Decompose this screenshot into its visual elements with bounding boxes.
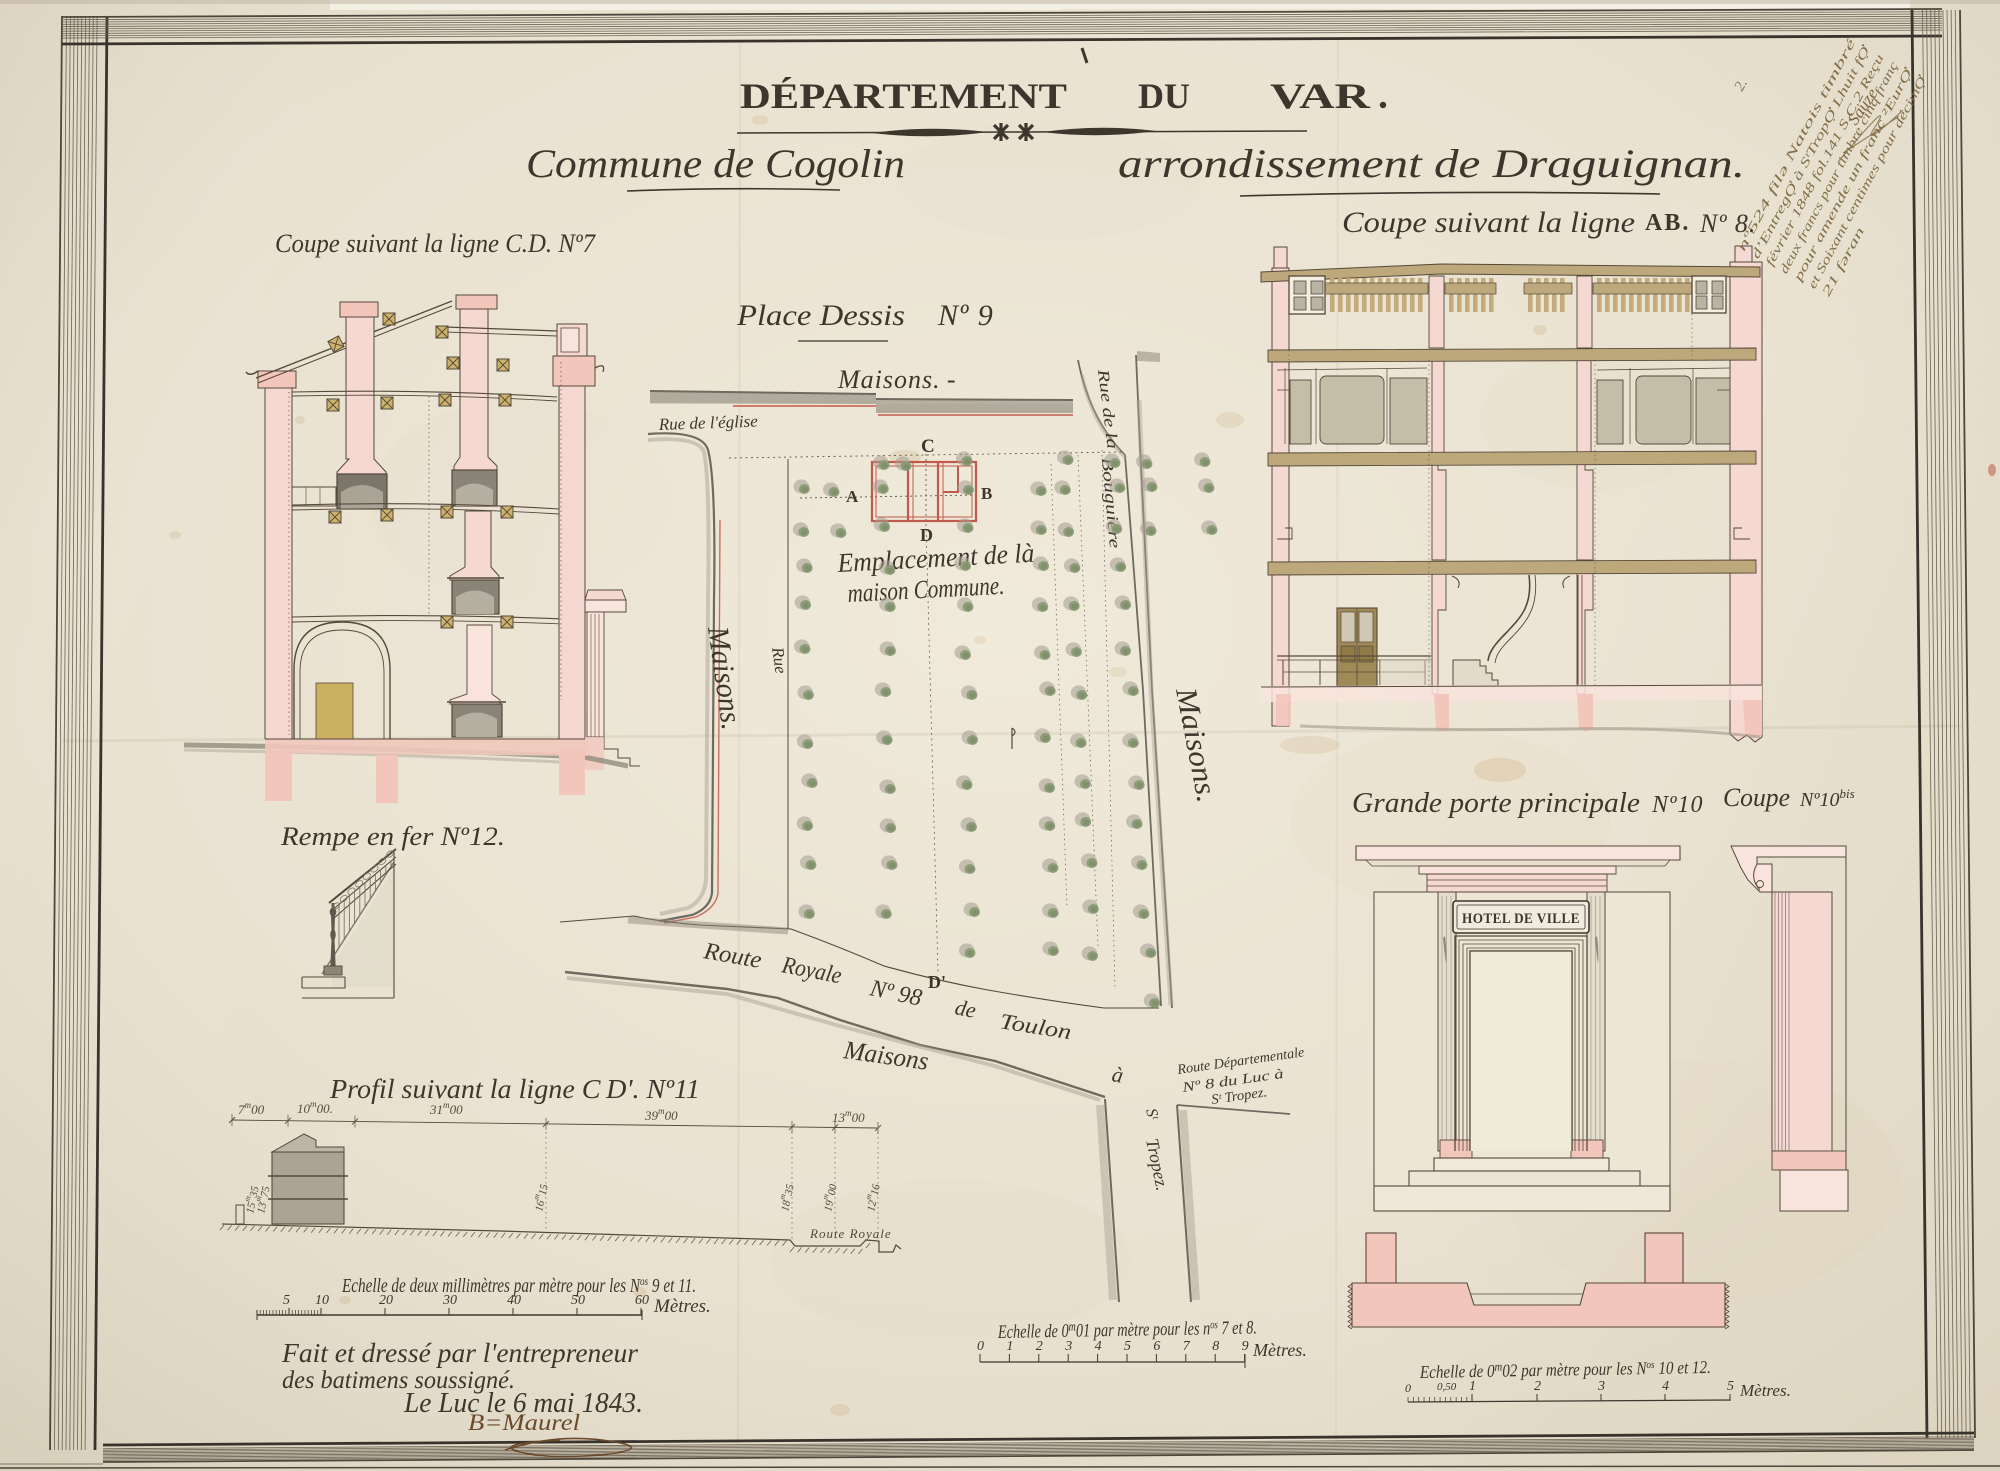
svg-text:5: 5 <box>283 1293 290 1308</box>
svg-text:Grande porte principale: Grande porte principale <box>1352 788 1640 819</box>
svg-text:HOTEL DE VILLE: HOTEL DE VILLE <box>1462 911 1580 927</box>
svg-text:2: 2 <box>1036 1339 1043 1354</box>
svg-text:Rue de l'église: Rue de l'église <box>657 412 758 434</box>
svg-text:0,50: 0,50 <box>1437 1381 1457 1393</box>
svg-text:Place Dessis: Place Dessis <box>736 299 905 332</box>
svg-text:60: 60 <box>635 1293 649 1308</box>
svg-text:Commune de Cogolin: Commune de Cogolin <box>526 141 905 186</box>
svg-text:Rempe en fer Nº12.: Rempe en fer Nº12. <box>280 822 505 851</box>
svg-text:2: 2 <box>1534 1379 1541 1394</box>
svg-text:D': D' <box>928 972 946 992</box>
svg-text:Route Royale: Route Royale <box>809 1226 892 1241</box>
svg-text:D: D <box>920 525 933 545</box>
svg-text:5: 5 <box>1727 1379 1734 1394</box>
svg-text:8: 8 <box>1212 1339 1219 1354</box>
svg-text:4: 4 <box>1095 1339 1102 1354</box>
svg-text:Profil suivant la ligne C D'.: Profil suivant la ligne C D'. Nº11 <box>329 1074 700 1104</box>
svg-text:A: A <box>846 487 859 506</box>
svg-text:3: 3 <box>1597 1379 1605 1394</box>
svg-text:9: 9 <box>1242 1339 1249 1354</box>
svg-text:B: B <box>981 484 992 503</box>
svg-text:DÉPARTEMENT: DÉPARTEMENT <box>740 76 1067 116</box>
svg-text:Fait et dressé par l'entrepren: Fait et dressé par l'entrepreneur <box>281 1338 639 1368</box>
svg-text:5: 5 <box>1124 1339 1131 1354</box>
svg-text:6: 6 <box>1153 1339 1160 1354</box>
svg-text:4: 4 <box>1662 1379 1669 1394</box>
svg-text:Coupe: Coupe <box>1723 783 1790 812</box>
svg-text:30: 30 <box>442 1293 457 1308</box>
svg-text:Coupe suivant la ligne: Coupe suivant la ligne <box>1342 206 1635 239</box>
svg-text:0: 0 <box>1405 1381 1411 1395</box>
svg-text:10: 10 <box>315 1293 329 1308</box>
svg-text:Mètres.: Mètres. <box>1739 1381 1791 1400</box>
svg-text:DU: DU <box>1138 76 1190 116</box>
svg-text:20: 20 <box>379 1293 393 1308</box>
svg-text:3: 3 <box>1064 1339 1072 1354</box>
svg-text:Maisons. -: Maisons. - <box>837 365 956 394</box>
svg-text:AB.: AB. <box>1645 210 1690 236</box>
svg-text:0: 0 <box>977 1339 984 1354</box>
svg-text:VAR: VAR <box>1270 76 1371 116</box>
svg-text:arrondissement de Draguignan.: arrondissement de Draguignan. <box>1118 141 1745 186</box>
svg-text:50: 50 <box>571 1293 585 1308</box>
svg-text:7m00: 7m00 <box>238 1100 265 1117</box>
svg-text:Mètres.: Mètres. <box>1252 1340 1307 1360</box>
svg-text:B=Maurel: B=Maurel <box>468 1410 580 1435</box>
svg-text:40: 40 <box>507 1293 521 1308</box>
svg-text:Nº10: Nº10 <box>1651 792 1703 818</box>
svg-text:Rue: Rue <box>768 645 791 675</box>
svg-text:1: 1 <box>1006 1339 1013 1354</box>
svg-text:1: 1 <box>1469 1379 1476 1394</box>
svg-text:7: 7 <box>1183 1339 1191 1354</box>
svg-text:C: C <box>921 436 935 457</box>
svg-text:Mètres.: Mètres. <box>653 1296 711 1317</box>
svg-text:Nº 9: Nº 9 <box>937 299 994 332</box>
svg-text:Coupe suivant la ligne C.D. N: Coupe suivant la ligne C.D. Nº7 <box>275 229 596 258</box>
